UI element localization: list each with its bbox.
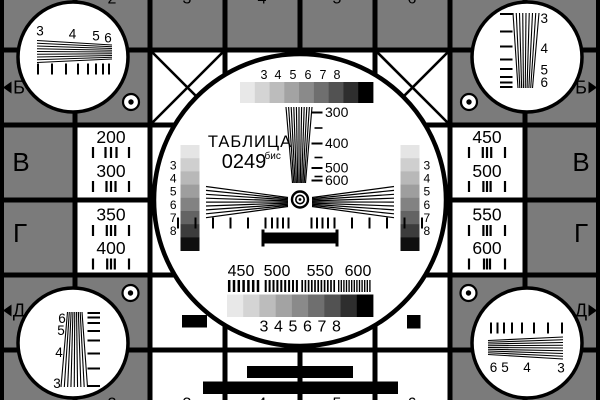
wedge-label: 600 <box>325 172 349 188</box>
gray-step-label: 8 <box>332 319 341 336</box>
tv-test-card: 2 3 4 5 6 2 3 4 5 6 3 4 5 6 7 8 300 <box>0 0 600 400</box>
staircase-label: 5 <box>424 185 431 199</box>
wedge-label: 5 <box>57 323 65 338</box>
column-digit: 5 <box>333 396 342 400</box>
column-digit: 2 <box>108 396 117 400</box>
left-staircase-labels: 3 4 5 6 7 8 <box>170 159 177 239</box>
resolution-value: 600 <box>472 238 501 258</box>
staircase-label: 3 <box>424 159 431 173</box>
bottom-narrow-bar <box>247 366 353 378</box>
wedge-label: 4 <box>69 27 77 42</box>
column-digit: 6 <box>408 396 417 400</box>
resolution-value: 450 <box>472 127 501 147</box>
resolution-value: 350 <box>96 205 125 225</box>
gray-step-label: 8 <box>334 68 341 82</box>
column-digit: 3 <box>183 396 192 400</box>
bottom-grayscale-bar <box>227 295 373 318</box>
wedge-label: 4 <box>523 360 531 375</box>
burst-label: 450 <box>228 263 255 280</box>
bottom-wide-bar <box>203 382 398 395</box>
gray-step-label: 3 <box>261 68 268 82</box>
burst-label: 500 <box>264 263 291 280</box>
wedge-scale-labels: 300 400 500 600 <box>325 104 349 188</box>
top-grayscale-bar <box>240 82 373 103</box>
gray-step-label: 7 <box>320 68 327 82</box>
wedge-label: 300 <box>325 104 349 120</box>
row-letter-g-left: Г <box>13 218 27 248</box>
staircase-label: 8 <box>424 224 431 238</box>
resolution-value: 200 <box>96 127 125 147</box>
card-number: 0249 <box>222 151 267 173</box>
card-number-suffix: бис <box>265 150 281 162</box>
row-letter-v-right: В <box>572 147 589 177</box>
column-digit: 4 <box>258 396 267 400</box>
edge-letter-d-right: Д <box>575 301 587 321</box>
wedge-label: 3 <box>53 376 61 391</box>
gray-step-label: 5 <box>290 68 297 82</box>
burst-label: 600 <box>345 263 372 280</box>
wedge-label: 5 <box>92 29 100 44</box>
resolution-value: 500 <box>472 161 501 181</box>
right-grayscale-staircase <box>401 145 420 251</box>
gray-step-label: 6 <box>305 68 312 82</box>
edge-letter-b-right: Б <box>575 78 587 98</box>
wedge-label: 3 <box>36 24 44 39</box>
gray-step-label: 7 <box>318 319 327 336</box>
gray-step-label: 6 <box>303 319 312 336</box>
resolution-value: 300 <box>96 161 125 181</box>
wedge-label: 5 <box>501 360 509 375</box>
corner-circle-bottom-left <box>18 288 128 398</box>
top-right-wedge-labels: 3 4 5 6 <box>541 11 549 90</box>
staircase-label: 4 <box>424 172 431 186</box>
wedge-label: 6 <box>490 360 498 375</box>
gray-step-label: 4 <box>275 68 282 82</box>
staircase-label: 5 <box>170 185 177 199</box>
staircase-label: 7 <box>170 211 177 225</box>
staircase-label: 3 <box>170 159 177 173</box>
resolution-value: 400 <box>96 238 125 258</box>
card-title-text: ТАБЛИЦА <box>208 133 292 151</box>
wedge-label: 6 <box>104 31 112 46</box>
left-grayscale-staircase <box>181 145 200 251</box>
wedge-label: 4 <box>55 345 63 360</box>
wedge-label: 4 <box>541 41 549 56</box>
column-digit: 2 <box>108 0 117 8</box>
black-square-right <box>407 315 421 329</box>
corner-circle-top-right <box>472 2 582 112</box>
column-digit: 3 <box>183 0 192 8</box>
edge-letter-d-left: Д <box>13 301 25 321</box>
column-digit: 5 <box>333 0 342 8</box>
wedge-label: 3 <box>541 11 549 26</box>
edge-letter-b-left: Б <box>13 78 25 98</box>
wedge-label: 6 <box>541 75 549 90</box>
right-staircase-labels: 3 4 5 6 7 8 <box>424 159 431 239</box>
gray-step-label: 4 <box>274 319 283 336</box>
staircase-label: 6 <box>170 198 177 212</box>
staircase-label: 8 <box>170 224 177 238</box>
wedge-label: 400 <box>325 135 349 151</box>
row-letter-v-left: В <box>12 147 29 177</box>
column-digit: 6 <box>408 0 417 8</box>
gray-step-label: 5 <box>289 319 298 336</box>
gray-step-label: 3 <box>260 319 269 336</box>
staircase-label: 7 <box>424 211 431 225</box>
resolution-value: 550 <box>472 205 501 225</box>
black-rectangle-left <box>182 315 207 328</box>
staircase-label: 4 <box>170 172 177 186</box>
staircase-label: 6 <box>424 198 431 212</box>
wedge-label: 3 <box>557 361 565 376</box>
column-digit: 4 <box>258 0 267 8</box>
burst-label: 550 <box>307 263 334 280</box>
row-letter-g-right: Г <box>574 218 588 248</box>
